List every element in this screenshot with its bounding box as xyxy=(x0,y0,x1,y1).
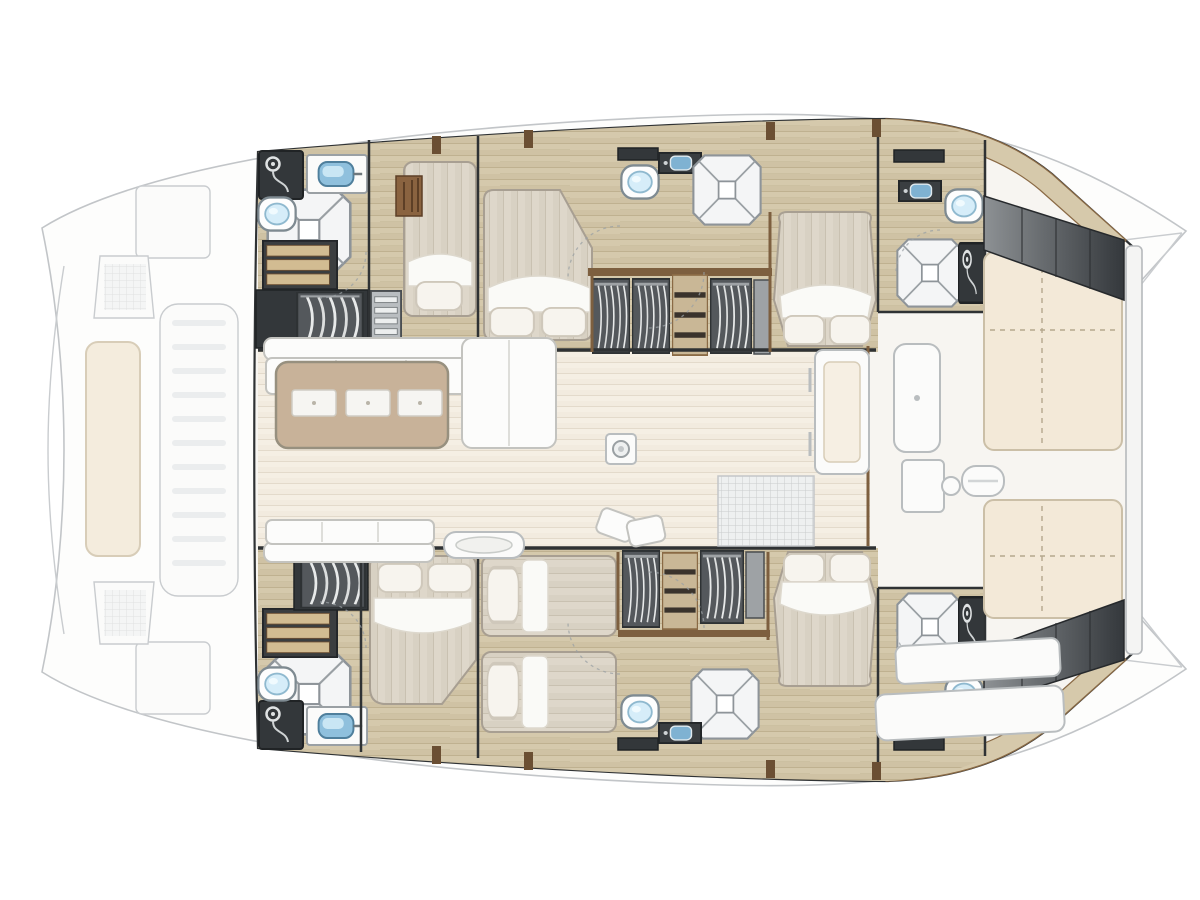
cockpit-bench xyxy=(810,350,869,474)
windlass-grate xyxy=(104,264,146,310)
catamaran-floorplan-page xyxy=(0,0,1200,900)
pillow xyxy=(487,664,518,719)
hanging-wardrobe xyxy=(593,279,630,353)
hanging-wardrobe xyxy=(701,551,744,623)
vanity-top xyxy=(618,738,658,750)
pillow xyxy=(784,316,824,344)
bed-sheet xyxy=(522,560,548,632)
port-aft-double-cabin xyxy=(774,212,876,346)
pillow xyxy=(542,308,586,336)
placemats xyxy=(292,390,442,416)
bed-sheet xyxy=(488,276,590,312)
toilet xyxy=(621,695,658,728)
vanity-top xyxy=(894,150,944,162)
toilet xyxy=(945,189,982,222)
starboard-sunpad xyxy=(984,500,1122,618)
shower-cubicle xyxy=(959,243,986,303)
serving-tray xyxy=(456,537,512,553)
stbd-forward-double-cabin xyxy=(370,556,476,704)
catamaran-floorplan xyxy=(0,0,1200,900)
sink xyxy=(307,707,367,745)
linen-shelves xyxy=(263,241,337,289)
pillow xyxy=(416,282,462,310)
module-knob xyxy=(942,477,960,495)
port-single-cabin xyxy=(396,162,476,316)
pillow xyxy=(378,564,422,592)
bench-cushion xyxy=(824,362,860,462)
vanity-top xyxy=(618,148,658,160)
hanging-wardrobe xyxy=(633,279,670,353)
bow-deck-hatch-starboard xyxy=(136,642,210,714)
aft-sofa-seats xyxy=(266,520,434,544)
mast-base xyxy=(606,434,636,464)
davit-post xyxy=(1126,246,1142,654)
bow-deck-hatch-port xyxy=(136,186,210,258)
wardrobe-footer-trim xyxy=(618,630,770,637)
sink xyxy=(899,181,941,201)
pillow xyxy=(830,554,870,582)
toilet xyxy=(258,667,295,700)
bed-sheet xyxy=(780,582,872,615)
toilet xyxy=(258,197,295,230)
center-walkway xyxy=(160,304,238,596)
doormat xyxy=(718,476,814,546)
hanging-wardrobe xyxy=(301,559,365,608)
stbd-aft-double-cabin xyxy=(774,552,876,686)
bed-sheet xyxy=(780,285,872,318)
port-mid-wardrobes xyxy=(588,268,772,355)
pillow xyxy=(830,316,870,344)
linen-shelves xyxy=(263,609,337,657)
pillow xyxy=(428,564,472,592)
shower-pan xyxy=(693,155,760,224)
narrow-shelves xyxy=(754,280,770,354)
pillow xyxy=(784,554,824,582)
cockpit-table xyxy=(894,344,940,452)
hanging-wardrobe xyxy=(711,279,752,353)
narrow-shelves xyxy=(746,552,764,618)
toilet xyxy=(621,165,658,198)
bed-sheet xyxy=(522,656,548,728)
shower-cubicle xyxy=(259,701,303,749)
fender-roll xyxy=(962,466,1004,496)
shower-cubicle xyxy=(259,151,303,199)
shelf-column xyxy=(663,553,698,629)
port-forward-head xyxy=(256,151,368,348)
shower-pan xyxy=(897,239,962,306)
sofa-backrest xyxy=(264,338,480,360)
hanging-wardrobe xyxy=(623,551,660,627)
bow-seat-grate xyxy=(104,590,146,636)
sink xyxy=(659,723,701,743)
sink xyxy=(307,155,367,193)
pillow xyxy=(490,308,534,336)
foredeck-sunpad xyxy=(86,342,140,556)
bed-sheet xyxy=(374,598,472,633)
pillow xyxy=(487,568,518,623)
